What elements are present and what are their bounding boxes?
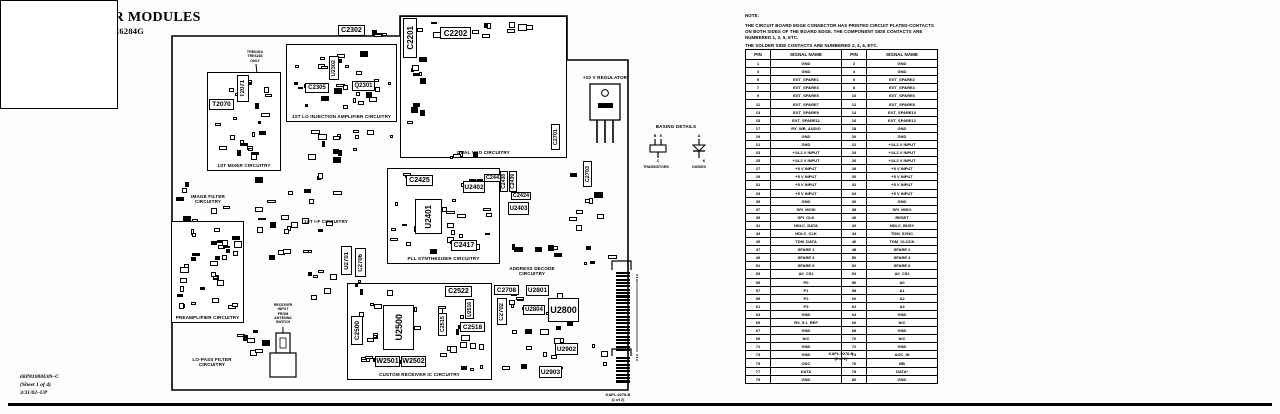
component-footprint: [511, 304, 515, 309]
component-footprint: [414, 307, 417, 313]
component-label: C2417: [454, 242, 475, 249]
edge-connector-contact: [616, 374, 630, 376]
component-c2439: C2439: [509, 171, 517, 192]
component-footprint: [243, 335, 248, 341]
component-label: C2702: [499, 303, 505, 321]
component-footprint: [589, 198, 593, 204]
edge-connector-contact: [616, 302, 630, 304]
component-footprint: [180, 267, 189, 273]
component-footprint: [486, 213, 492, 218]
section-label-image-filter: IMAGE FILTER CIRCUITRY: [184, 194, 232, 205]
component-label: C2701: [553, 129, 559, 145]
component-footprint: [509, 22, 516, 28]
component-footprint: [255, 207, 263, 212]
component-footprint: [333, 157, 341, 163]
edge-connector-contact: [616, 322, 630, 324]
component-footprint: [311, 295, 317, 301]
component-footprint: [259, 131, 266, 135]
component-footprint: [248, 148, 253, 151]
component-label: T2070: [212, 101, 230, 108]
component-label: C2708: [497, 287, 516, 294]
component-footprint: [470, 343, 476, 349]
component-footprint: [247, 338, 255, 343]
component-c2438: C2438: [500, 171, 508, 192]
component-footprint: [479, 344, 484, 350]
component-u2402: U2402: [463, 181, 485, 193]
regulator-label: +10 V REGULATOR: [576, 75, 634, 80]
component-footprint: [525, 329, 532, 334]
component-footprint: [367, 338, 374, 342]
component-label: C2438: [501, 174, 507, 189]
component-c2424: C2424: [511, 192, 531, 200]
component-u2302: U2302: [329, 56, 339, 80]
component-footprint: [407, 121, 413, 124]
component-label: W2502: [402, 358, 424, 365]
component-label: C2706: [358, 254, 364, 272]
edge-connector-contact: [616, 380, 630, 382]
component-footprint: [229, 88, 235, 93]
edge-connector-contact: [616, 339, 630, 341]
component-footprint: [237, 150, 241, 156]
component-c2522: C2522: [445, 286, 472, 297]
component-footprint: [281, 215, 290, 220]
component-footprint: [213, 276, 219, 280]
component-footprint: [265, 94, 273, 97]
component-footprint: [217, 280, 225, 286]
edge-connector-contact: [616, 312, 630, 314]
edge-connector-contact: [616, 289, 630, 291]
antenna-note: RECEIVER INPUT FROM ANTENNA SWITCH: [268, 303, 298, 325]
component-footprint: [353, 130, 359, 133]
component-footprint: [360, 289, 363, 295]
component-footprint: [179, 303, 184, 309]
basing-details-title: BASING DETAILS: [648, 124, 704, 129]
component-footprint: [214, 228, 220, 232]
component-label: U2500: [394, 314, 404, 341]
component-c2703: C2703: [583, 161, 592, 187]
component-footprint: [333, 191, 342, 195]
component-footprint: [521, 364, 527, 369]
component-footprint: [321, 66, 328, 69]
component-footprint: [586, 246, 590, 250]
component-footprint: [569, 217, 577, 222]
component-footprint: [210, 261, 218, 266]
component-footprint: [318, 134, 327, 140]
component-footprint: [597, 214, 604, 218]
component-footprint: [388, 82, 391, 85]
component-footprint: [255, 103, 260, 109]
component-footprint: [318, 229, 323, 232]
component-footprint: [183, 216, 191, 222]
component-u2903: U2903: [539, 366, 562, 378]
component-footprint: [355, 135, 359, 140]
component-footprint: [391, 228, 397, 231]
component-u2701: U2701: [341, 246, 352, 275]
component-u2801: U2801: [526, 285, 549, 296]
component-footprint: [452, 199, 456, 203]
component-footprint: [451, 230, 455, 235]
edge-connector-contact: [616, 299, 630, 301]
component-label: U2804: [525, 307, 543, 313]
edge-connector-contact: [616, 370, 630, 372]
component-footprint: [395, 202, 398, 206]
component-footprint: [375, 33, 382, 36]
component-footprint: [374, 304, 383, 309]
component-label: C2518: [463, 324, 482, 331]
component-u2902: U2902: [555, 343, 578, 355]
component-footprint: [483, 208, 491, 211]
component-footprint: [291, 222, 298, 228]
component-footprint: [219, 146, 227, 150]
component-u2403: U2403: [508, 202, 529, 215]
component-c2500: C2500: [351, 316, 363, 345]
component-label: C2425: [409, 177, 430, 184]
edge-connector-contact: [616, 367, 630, 369]
component-footprint: [211, 208, 218, 214]
edge-connector-contact: [616, 292, 630, 294]
component-footprint: [375, 87, 380, 91]
component-c2702: C2702: [497, 298, 507, 325]
edge-connector-contact: [616, 309, 630, 311]
component-footprint: [303, 250, 309, 253]
component-footprint: [358, 101, 364, 105]
component-u2804: U2804: [523, 305, 545, 315]
board-generated-layer: 1ST MIXER CIRCUITRY1ST LO INJECTION AMPL…: [0, 0, 1280, 414]
component-footprint: [367, 130, 375, 135]
component-footprint: [553, 246, 558, 251]
component-footprint: [343, 105, 347, 109]
component-c2701: C2701: [551, 124, 560, 150]
component-footprint: [345, 65, 349, 68]
component-footprint: [601, 351, 608, 357]
component-footprint: [200, 287, 205, 291]
component-footprint: [516, 297, 524, 301]
component-footprint: [185, 182, 189, 187]
component-footprint: [485, 233, 490, 236]
edge-connector-contact: [616, 357, 630, 359]
edge-connector-contact: [616, 336, 630, 338]
component-label: U2516: [467, 302, 473, 317]
component-footprint: [294, 82, 298, 86]
component-footprint: [330, 274, 338, 280]
component-footprint: [304, 189, 311, 193]
component-footprint: [594, 192, 603, 198]
component-footprint: [472, 30, 479, 34]
component-footprint: [230, 135, 235, 140]
component-label: Q2301: [354, 83, 372, 89]
component-footprint: [333, 149, 339, 154]
edge-connector-contact: [616, 319, 630, 321]
component-q2301: Q2301: [352, 81, 375, 91]
component-footprint: [514, 247, 523, 252]
edge-connector-contact: [616, 279, 630, 281]
component-footprint: [590, 261, 596, 264]
component-label: C2522: [448, 288, 469, 295]
component-footprint: [420, 110, 425, 116]
component-footprint: [255, 177, 263, 183]
component-label: C2515: [440, 316, 446, 332]
section-label-first-if: 1ST I-F CIRCUITRY: [298, 219, 354, 224]
component-footprint: [440, 353, 447, 356]
component-footprint: [442, 207, 447, 213]
component-label: C2500: [354, 321, 361, 340]
component-footprint: [251, 154, 257, 160]
component-footprint: [233, 117, 237, 120]
component-footprint: [430, 249, 437, 254]
component-footprint: [232, 303, 237, 306]
component-footprint: [223, 246, 231, 249]
component-footprint: [255, 349, 264, 353]
component-footprint: [461, 335, 470, 341]
component-footprint: [226, 249, 230, 253]
component-footprint: [257, 227, 263, 233]
component-footprint: [387, 290, 393, 296]
component-footprint: [180, 286, 183, 292]
component-footprint: [457, 214, 466, 218]
component-footprint: [592, 344, 595, 348]
component-label: U2401: [424, 205, 433, 229]
component-footprint: [518, 24, 527, 30]
section-label-pll: PLL SYNTHESIZER CIRCUITRY: [377, 256, 510, 261]
component-footprint: [308, 272, 312, 276]
component-footprint: [353, 98, 356, 103]
component-label: C2424: [513, 193, 529, 199]
section-label-dual-vco: DUAL VCO CIRCUITRY: [390, 150, 577, 155]
component-u2500: U2500: [383, 305, 414, 350]
component-c2518: C2518: [460, 322, 485, 332]
component-label: C2201: [406, 26, 415, 50]
edge-connector-contact: [616, 306, 630, 308]
section-label-addr-decode: ADDRESS DECODE CIRCUITRY: [506, 266, 558, 277]
component-footprint: [507, 29, 515, 34]
component-label: T2071: [240, 80, 246, 97]
component-footprint: [526, 346, 532, 349]
component-c2302: C2302: [338, 25, 365, 36]
component-footprint: [308, 154, 315, 160]
component-footprint: [212, 298, 219, 303]
component-footprint: [177, 294, 183, 297]
component-footprint: [284, 229, 290, 234]
component-footprint: [253, 330, 258, 333]
component-footprint: [321, 96, 330, 101]
component-footprint: [283, 249, 291, 254]
component-label: C2703: [585, 166, 591, 182]
component-footprint: [480, 365, 483, 369]
component-footprint: [309, 199, 314, 205]
component-footprint: [192, 233, 196, 237]
component-c2706: C2706: [355, 248, 366, 277]
component-label: W2501: [376, 358, 398, 365]
section-label-mixer: 1ST MIXER CIRCUITRY: [197, 163, 291, 168]
component-c2201: C2201: [403, 18, 417, 58]
edge-connector-contact: [616, 285, 630, 287]
component-footprint: [366, 92, 372, 97]
component-footprint: [258, 121, 261, 124]
component-footprint: [270, 222, 276, 229]
component-footprint: [551, 355, 558, 359]
component-footprint: [305, 104, 309, 107]
component-label: C2305: [308, 85, 326, 91]
component-footprint: [322, 141, 325, 147]
component-label: U2800: [550, 305, 577, 315]
edge-connector-contact: [616, 346, 630, 348]
component-footprint: [318, 270, 324, 273]
component-footprint: [356, 71, 362, 75]
component-footprint: [182, 188, 187, 192]
component-label: U2801: [528, 287, 547, 294]
edge-connector-contact: [616, 364, 630, 366]
edge-connector-contact: [616, 329, 630, 331]
component-footprint: [420, 78, 427, 84]
component-footprint: [288, 191, 293, 196]
component-footprint: [233, 251, 238, 256]
component-w2502: W2502: [401, 356, 426, 367]
section-label-custom-rx: CUSTOM RECEIVER IC CIRCUITRY: [337, 372, 502, 377]
component-c2515: C2515: [438, 313, 447, 336]
component-c2305: C2305: [305, 83, 329, 93]
component-c2202: C2202: [440, 27, 471, 39]
component-label: C2439: [510, 174, 516, 189]
component-footprint: [267, 200, 276, 203]
component-t2071: T2071: [237, 75, 249, 102]
component-footprint: [324, 288, 331, 294]
section-label-preamp: PREAMPLIFIER CIRCUITRY: [161, 315, 254, 320]
component-footprint: [176, 197, 184, 202]
component-footprint: [414, 326, 421, 330]
component-footprint: [232, 236, 240, 240]
component-label: U2402: [464, 184, 483, 191]
edge-connector-contact: [616, 360, 630, 362]
component-footprint: [502, 366, 510, 371]
edge-connector-contact: [616, 342, 630, 344]
component-footprint: [482, 34, 491, 38]
component-footprint: [461, 366, 467, 371]
edge-connector-contact: [616, 377, 630, 379]
edge-connector-contact: [616, 275, 630, 277]
component-footprint: [360, 51, 368, 57]
component-footprint: [576, 210, 583, 213]
component-footprint: [456, 329, 459, 335]
component-footprint: [447, 223, 454, 227]
component-footprint: [353, 148, 357, 151]
component-footprint: [252, 132, 255, 137]
component-footprint: [222, 255, 227, 260]
basing-diodes-label: DIODES: [686, 165, 712, 169]
component-footprint: [192, 253, 200, 256]
component-c2425: C2425: [406, 175, 433, 186]
component-footprint: [556, 326, 561, 330]
component-footprint: [411, 107, 418, 113]
component-footprint: [535, 247, 542, 253]
edge-connector-contact: [616, 316, 630, 318]
component-footprint: [543, 352, 547, 357]
edge-connector-contact: [616, 295, 630, 297]
component-footprint: [298, 87, 303, 90]
component-footprint: [358, 280, 361, 283]
component-footprint: [450, 156, 453, 159]
component-footprint: [438, 306, 445, 309]
component-footprint: [355, 283, 358, 287]
component-footprint: [269, 255, 274, 260]
component-footprint: [460, 315, 464, 320]
component-label: U2302: [331, 60, 337, 76]
edge-connector-contact: [616, 282, 630, 284]
component-footprint: [234, 241, 243, 247]
component-footprint: [382, 33, 387, 36]
component-footprint: [295, 65, 300, 68]
component-footprint: [603, 362, 607, 366]
component-footprint: [417, 28, 423, 32]
component-footprint: [333, 136, 341, 140]
component-footprint: [459, 234, 463, 237]
component-label: U2903: [541, 369, 560, 376]
component-footprint: [406, 242, 411, 246]
component-footprint: [584, 262, 587, 265]
component-footprint: [334, 88, 343, 94]
component-label: C2202: [444, 29, 468, 38]
component-footprint: [258, 218, 267, 221]
section-label-lo-pass: LO-PASS FILTER CIRCUITRY: [188, 357, 236, 368]
component-label: C2302: [341, 27, 362, 34]
component-footprint: [390, 135, 394, 138]
component-footprint: [419, 57, 427, 62]
component-footprint: [217, 240, 221, 243]
component-footprint: [554, 253, 563, 257]
component-footprint: [450, 346, 457, 353]
component-footprint: [446, 211, 454, 215]
component-footprint: [191, 302, 196, 305]
component-footprint: [576, 225, 581, 231]
component-footprint: [361, 359, 367, 362]
component-u2516: U2516: [465, 299, 474, 319]
component-footprint: [223, 206, 230, 209]
component-footprint: [413, 73, 420, 77]
basing-transistors-label: TRANSISTORS: [640, 165, 672, 169]
component-footprint: [318, 173, 324, 179]
component-footprint: [412, 65, 419, 71]
component-footprint: [431, 22, 437, 25]
component-footprint: [241, 143, 248, 146]
component-footprint: [261, 113, 270, 118]
component-footprint: [460, 342, 467, 348]
component-footprint: [264, 87, 269, 93]
component-footprint: [180, 278, 187, 283]
vco-inner-rect: [0, 0, 118, 109]
component-footprint: [402, 224, 407, 227]
component-u2401: U2401: [415, 199, 442, 234]
component-footprint: [313, 275, 318, 279]
component-label: U2403: [510, 206, 528, 212]
component-footprint: [215, 256, 221, 260]
component-footprint: [570, 173, 578, 177]
component-footprint: [540, 329, 549, 335]
edge-connector-contact: [616, 326, 630, 328]
component-footprint: [512, 330, 517, 334]
component-footprint: [191, 257, 197, 261]
component-footprint: [262, 340, 269, 346]
component-label: U2902: [557, 346, 576, 353]
component-footprint: [608, 255, 617, 260]
component-footprint: [487, 23, 492, 29]
component-footprint: [343, 85, 348, 90]
section-label-lo-injection: 1ST LO INJECTION AMPLIFIER CIRCUITRY: [276, 114, 407, 119]
component-footprint: [192, 219, 198, 222]
component-footprint: [215, 123, 221, 126]
component-footprint: [390, 238, 398, 241]
edge-connector-contact: [616, 349, 630, 351]
component-footprint: [356, 92, 360, 97]
component-u2800: U2800: [548, 298, 579, 322]
